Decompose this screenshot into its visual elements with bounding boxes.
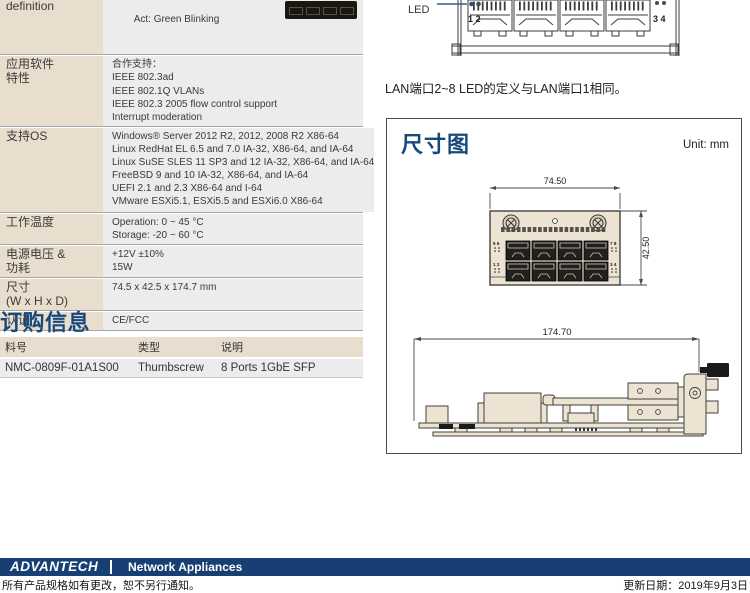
column-header: 类型 [133,337,216,357]
table-row: 工作温度 Operation: 0 ~ 45 °C Storage: -20 ~… [0,214,363,244]
front-port-label-tl: 5 6 [493,241,500,246]
type-cell: Thumbscrew [133,359,216,377]
led-dot [655,1,659,5]
ordering-table: 料号 类型 说明 NMC-0809F-01A1S00 Thumbscrew 8 … [0,337,363,377]
dimension-figure-box: 尺寸图 Unit: mm 74.50 42.50 [386,118,742,454]
logo-divider [110,560,112,574]
table-row: 支持OS Windows® Server 2012 R2, 2012, 2008… [0,128,363,212]
column-header: 说明 [216,337,363,357]
column-header: 料号 [0,337,133,357]
front-port-label-tr: 7 8 [610,241,617,246]
part-number-cell: NMC-0809F-01A1S00 [0,359,133,377]
port-numbers-right: 3 4 [653,14,666,24]
spec-label: definition [0,0,103,54]
dimension-width-label: 74.50 [544,176,567,186]
front-port-label-br: 3 4 [610,262,617,267]
front-view-drawing: 74.50 42.50 [473,165,665,299]
led-dot [662,1,666,5]
ordering-heading: 订购信息 [0,305,90,337]
unit-label: Unit: mm [683,139,729,151]
spec-value: 74.5 x 42.5 x 174.7 mm [103,279,363,310]
spec-label: 工作温度 [0,214,103,244]
led-caption: LAN端口2~8 LED的定义与LAN端口1相同。 [385,78,627,97]
lan-port-led-figure: LED 1 2 3 4 [400,0,690,64]
dimension-height-label: 42.50 [641,237,651,260]
spec-label: 支持OS [0,128,103,212]
led-dot [469,2,474,7]
spec-value: +12V ±10% 15W [103,246,363,277]
table-header-row: 料号 类型 说明 [0,337,363,357]
spec-value: 合作支持： IEEE 802.3ad IEEE 802.1Q VLANs IEE… [103,56,363,125]
spec-value: Act: Green Blinking [103,0,363,54]
spec-table: definition Act: Green Blinking 应用软件 特性 合… [0,0,363,332]
port-numbers-left: 1 2 [468,14,481,24]
footer-bar: ADVANTECH Network Appliances [0,558,750,576]
spec-value: Operation: 0 ~ 45 °C Storage: -20 ~ 60 °… [103,214,363,244]
advantech-logo: ADVANTECH [10,559,98,574]
table-row: definition Act: Green Blinking [0,0,363,54]
led-label: LED [408,4,429,16]
panel-photo [285,1,357,19]
spec-label: 电源电压 & 功耗 [0,246,103,277]
side-view-drawing: 174.70 [395,317,740,442]
spec-label: 应用软件 特性 [0,56,103,125]
led-dot [476,2,481,7]
table-row: 电源电压 & 功耗 +12V ±10% 15W [0,246,363,277]
spec-value: Windows® Server 2012 R2, 2012, 2008 R2 X… [103,128,374,212]
dimension-depth-label: 174.70 [542,327,571,338]
table-row: NMC-0809F-01A1S00 Thumbscrew 8 Ports 1Gb… [0,359,363,377]
front-port-label-bl: 1 2 [493,262,500,267]
spec-value: CE/FCC [103,312,363,330]
series-title: Network Appliances [128,560,242,574]
table-row: 应用软件 特性 合作支持： IEEE 802.3ad IEEE 802.1Q V… [0,56,363,125]
description-cell: 8 Ports 1GbE SFP [216,359,363,377]
dimension-heading: 尺寸图 [401,127,470,159]
spec-value-text: Act: Green Blinking [134,14,220,25]
panel-hole [553,219,558,224]
datasheet-page: definition Act: Green Blinking 应用软件 特性 合… [0,0,750,591]
